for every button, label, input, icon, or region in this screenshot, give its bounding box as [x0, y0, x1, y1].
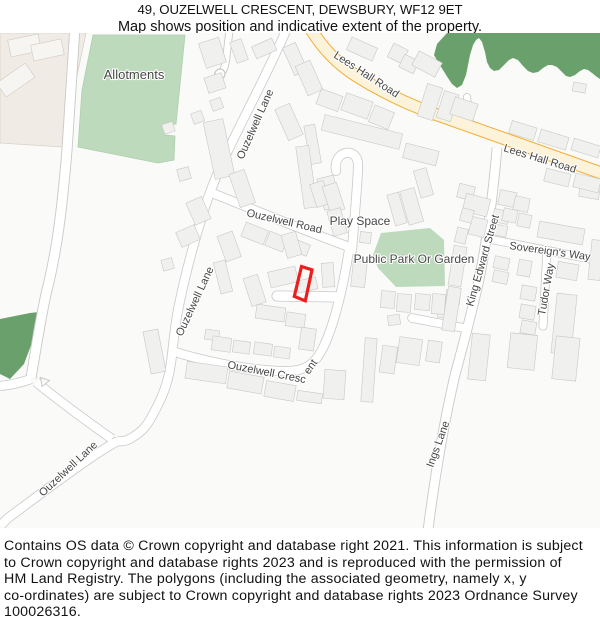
svg-text:Allotments: Allotments [104, 67, 165, 82]
svg-text:Play Space: Play Space [330, 214, 391, 228]
svg-text:Public Park Or Garden: Public Park Or Garden [354, 252, 475, 266]
